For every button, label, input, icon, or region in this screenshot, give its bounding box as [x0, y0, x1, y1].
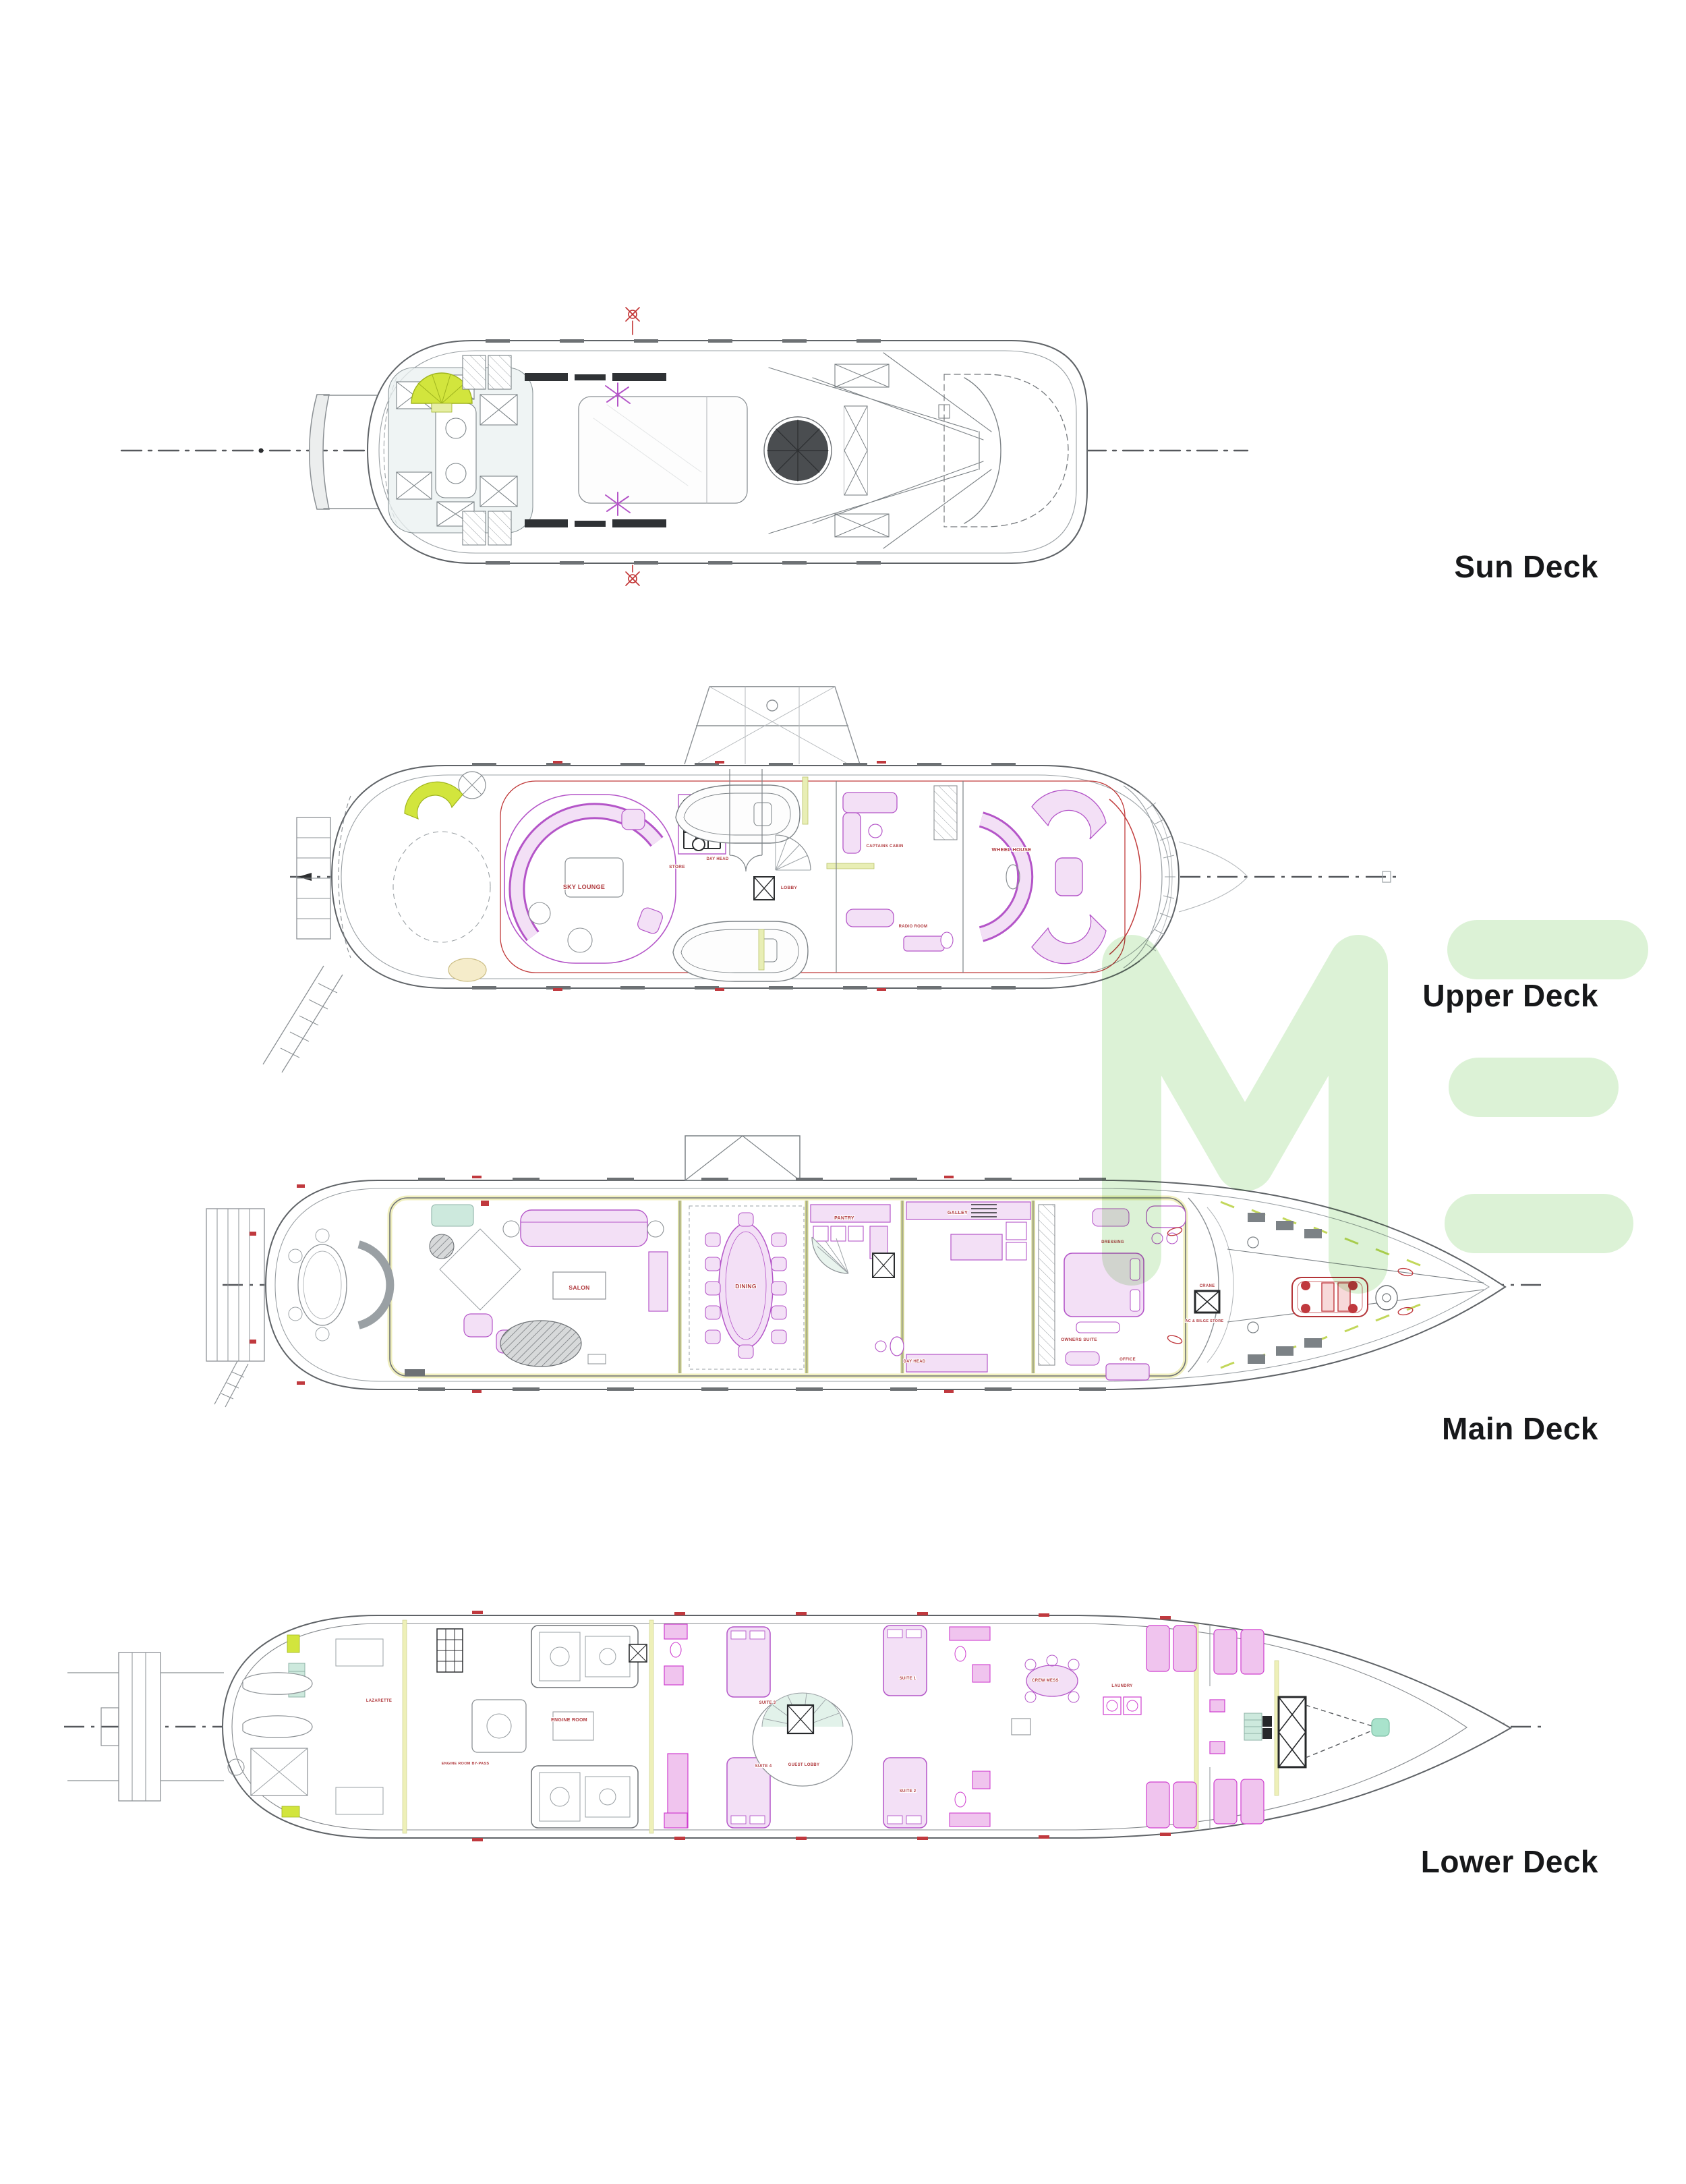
sky-lounge [504, 795, 676, 963]
deck-label-sun: Sun Deck [1356, 549, 1598, 584]
room-label: SKY LOUNGE [563, 884, 605, 890]
upper-deck-plan: SKY LOUNGE STORE DAY HEAD LOBBY CAPTAINS… [263, 687, 1403, 1072]
room-label: SUITE 2 [900, 1789, 917, 1793]
room-label: SUITE 4 [755, 1764, 772, 1769]
room-label: LOBBY [781, 886, 798, 890]
room-label: GALLEY [948, 1211, 968, 1215]
room-label: ENGINE ROOM BY-PASS [442, 1762, 490, 1766]
deck-label-lower: Lower Deck [1356, 1844, 1598, 1879]
sun-deck-plan [121, 308, 1248, 585]
mast-windbreak [310, 395, 329, 509]
room-label: DAY HEAD [706, 857, 728, 861]
room-label: DAY HEAD [903, 1360, 925, 1364]
room-label: PANTRY [834, 1216, 854, 1221]
room-label: LAUNDRY [1111, 1684, 1132, 1688]
room-label: DINING [735, 1283, 757, 1290]
room-label: CRANE [1200, 1284, 1215, 1288]
sun-deck-open-area [579, 397, 747, 503]
room-label: STORE [669, 865, 685, 869]
room-label: GUEST LOBBY [788, 1763, 820, 1767]
stern-platform [67, 1653, 224, 1801]
lower-deck-plan: LAZARETTE ENGINE ROOM ENGINE ROOM BY-PAS… [64, 1611, 1544, 1841]
room-label: SUITE 1 [900, 1677, 917, 1681]
room-label: LAZARETTE [366, 1699, 392, 1703]
room-label: ENGINE ROOM [551, 1718, 587, 1723]
mast-structure [685, 687, 860, 764]
room-label: CAPTAINS CABIN [866, 844, 903, 849]
room-label: OWNERS SUITE [1061, 1338, 1097, 1342]
room-label: WHEEL HOUSE [991, 846, 1031, 853]
skylight-box [685, 1136, 800, 1180]
spa-pool [764, 417, 832, 484]
room-label: AC & BILGE STORE [1186, 1319, 1224, 1323]
room-label: SALON [569, 1284, 589, 1291]
room-label: RADIO ROOM [899, 925, 928, 929]
room-label: SUITE 3 [759, 1701, 776, 1705]
room-label: CREW MESS [1032, 1679, 1059, 1683]
yacht-deck-plans-page: SKY LOUNGE STORE DAY HEAD LOBBY CAPTAINS… [0, 0, 1686, 2184]
deck-label-upper: Upper Deck [1356, 978, 1598, 1013]
lower-deck-hull [223, 1615, 1511, 1838]
deck-label-main: Main Deck [1356, 1411, 1598, 1446]
room-label: OFFICE [1120, 1358, 1136, 1362]
swim-platform [206, 1209, 264, 1407]
